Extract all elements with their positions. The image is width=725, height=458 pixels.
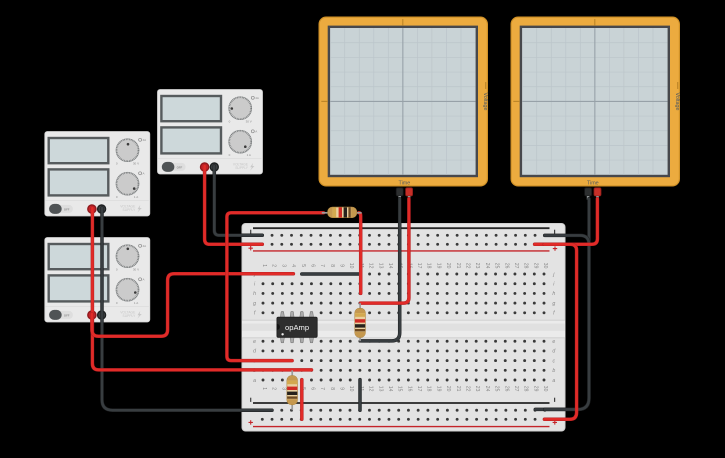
svg-text:14: 14 bbox=[387, 386, 393, 392]
svg-text:29: 29 bbox=[532, 386, 538, 392]
svg-text:20: 20 bbox=[445, 386, 451, 392]
svg-text:18: 18 bbox=[426, 263, 432, 269]
svg-text:4: 4 bbox=[290, 264, 296, 267]
svg-text:21: 21 bbox=[455, 263, 461, 269]
svg-text:e: e bbox=[552, 339, 555, 345]
svg-text:30 V: 30 V bbox=[246, 120, 252, 124]
svg-text:e: e bbox=[253, 339, 256, 345]
svg-text:A: A bbox=[255, 130, 257, 134]
svg-text:22: 22 bbox=[464, 386, 470, 392]
svg-text:30 V: 30 V bbox=[133, 268, 139, 272]
svg-text:Voltage: Voltage bbox=[482, 93, 488, 111]
svg-text:25: 25 bbox=[494, 263, 500, 269]
svg-text:5: 5 bbox=[300, 264, 306, 267]
svg-text:23: 23 bbox=[474, 263, 480, 269]
svg-text:17: 17 bbox=[416, 263, 422, 269]
svg-text:30: 30 bbox=[542, 263, 548, 269]
svg-text:15: 15 bbox=[397, 386, 403, 392]
svg-text:4A: 4A bbox=[143, 244, 147, 248]
svg-text:13: 13 bbox=[377, 386, 383, 392]
svg-text:g: g bbox=[552, 301, 555, 307]
svg-text:10: 10 bbox=[348, 263, 354, 269]
svg-text:2: 2 bbox=[271, 387, 277, 390]
svg-text:27: 27 bbox=[513, 386, 519, 392]
svg-text:c: c bbox=[553, 358, 556, 364]
svg-text:18: 18 bbox=[426, 386, 432, 392]
svg-text:17: 17 bbox=[416, 386, 422, 392]
svg-text:9: 9 bbox=[339, 387, 345, 390]
svg-text:10: 10 bbox=[348, 386, 354, 392]
svg-text:19: 19 bbox=[435, 386, 441, 392]
svg-text:28: 28 bbox=[523, 263, 529, 269]
svg-text:7: 7 bbox=[319, 264, 325, 267]
svg-text:7: 7 bbox=[319, 387, 325, 390]
svg-text:21: 21 bbox=[455, 386, 461, 392]
svg-text:3: 3 bbox=[280, 264, 286, 267]
svg-text:h: h bbox=[253, 291, 256, 297]
svg-text:OFF: OFF bbox=[64, 313, 70, 317]
svg-text:26: 26 bbox=[503, 263, 509, 269]
svg-text:1: 1 bbox=[261, 264, 267, 267]
svg-text:4A: 4A bbox=[255, 96, 259, 100]
svg-text:23: 23 bbox=[474, 386, 480, 392]
svg-text:SUPPLY: SUPPLY bbox=[235, 166, 249, 170]
svg-text:3: 3 bbox=[280, 387, 286, 390]
svg-text:Time: Time bbox=[399, 180, 411, 186]
svg-text:A: A bbox=[143, 172, 145, 176]
svg-text:g: g bbox=[253, 301, 256, 307]
svg-text:16: 16 bbox=[406, 386, 412, 392]
svg-text:OFF: OFF bbox=[64, 207, 70, 211]
svg-text:8: 8 bbox=[329, 387, 335, 390]
svg-text:4A: 4A bbox=[143, 138, 147, 142]
svg-text:Voltage: Voltage bbox=[674, 93, 680, 111]
svg-text:1 A: 1 A bbox=[134, 195, 138, 199]
svg-text:28: 28 bbox=[523, 386, 529, 392]
svg-text:1: 1 bbox=[261, 387, 267, 390]
svg-text:a: a bbox=[253, 378, 256, 384]
svg-text:24: 24 bbox=[484, 263, 490, 269]
svg-text:1 A: 1 A bbox=[247, 153, 251, 157]
svg-text:30: 30 bbox=[542, 386, 548, 392]
svg-text:Time: Time bbox=[587, 180, 599, 186]
svg-text:opAmp: opAmp bbox=[285, 323, 309, 332]
svg-text:13: 13 bbox=[377, 263, 383, 269]
svg-text:SUPPLY: SUPPLY bbox=[123, 314, 137, 318]
svg-text:h: h bbox=[552, 291, 555, 297]
svg-text:SUPPLY: SUPPLY bbox=[123, 208, 137, 212]
svg-text:1 A: 1 A bbox=[134, 301, 138, 305]
svg-text:6: 6 bbox=[309, 264, 315, 267]
svg-text:14: 14 bbox=[387, 263, 393, 269]
svg-text:2: 2 bbox=[271, 264, 277, 267]
svg-text:8: 8 bbox=[329, 264, 335, 267]
svg-text:25: 25 bbox=[494, 386, 500, 392]
svg-text:19: 19 bbox=[435, 263, 441, 269]
svg-text:24: 24 bbox=[484, 386, 490, 392]
svg-text:6: 6 bbox=[309, 387, 315, 390]
svg-text:9: 9 bbox=[339, 264, 345, 267]
svg-text:20: 20 bbox=[445, 263, 451, 269]
svg-text:29: 29 bbox=[532, 263, 538, 269]
svg-text:b: b bbox=[552, 368, 555, 374]
svg-text:a: a bbox=[552, 378, 555, 384]
svg-text:27: 27 bbox=[513, 263, 519, 269]
svg-text:30 V: 30 V bbox=[133, 162, 139, 166]
svg-text:26: 26 bbox=[503, 386, 509, 392]
svg-text:A: A bbox=[143, 278, 145, 282]
svg-text:22: 22 bbox=[464, 263, 470, 269]
svg-text:OFF: OFF bbox=[177, 165, 183, 169]
svg-text:12: 12 bbox=[368, 386, 374, 392]
svg-text:12: 12 bbox=[368, 263, 374, 269]
